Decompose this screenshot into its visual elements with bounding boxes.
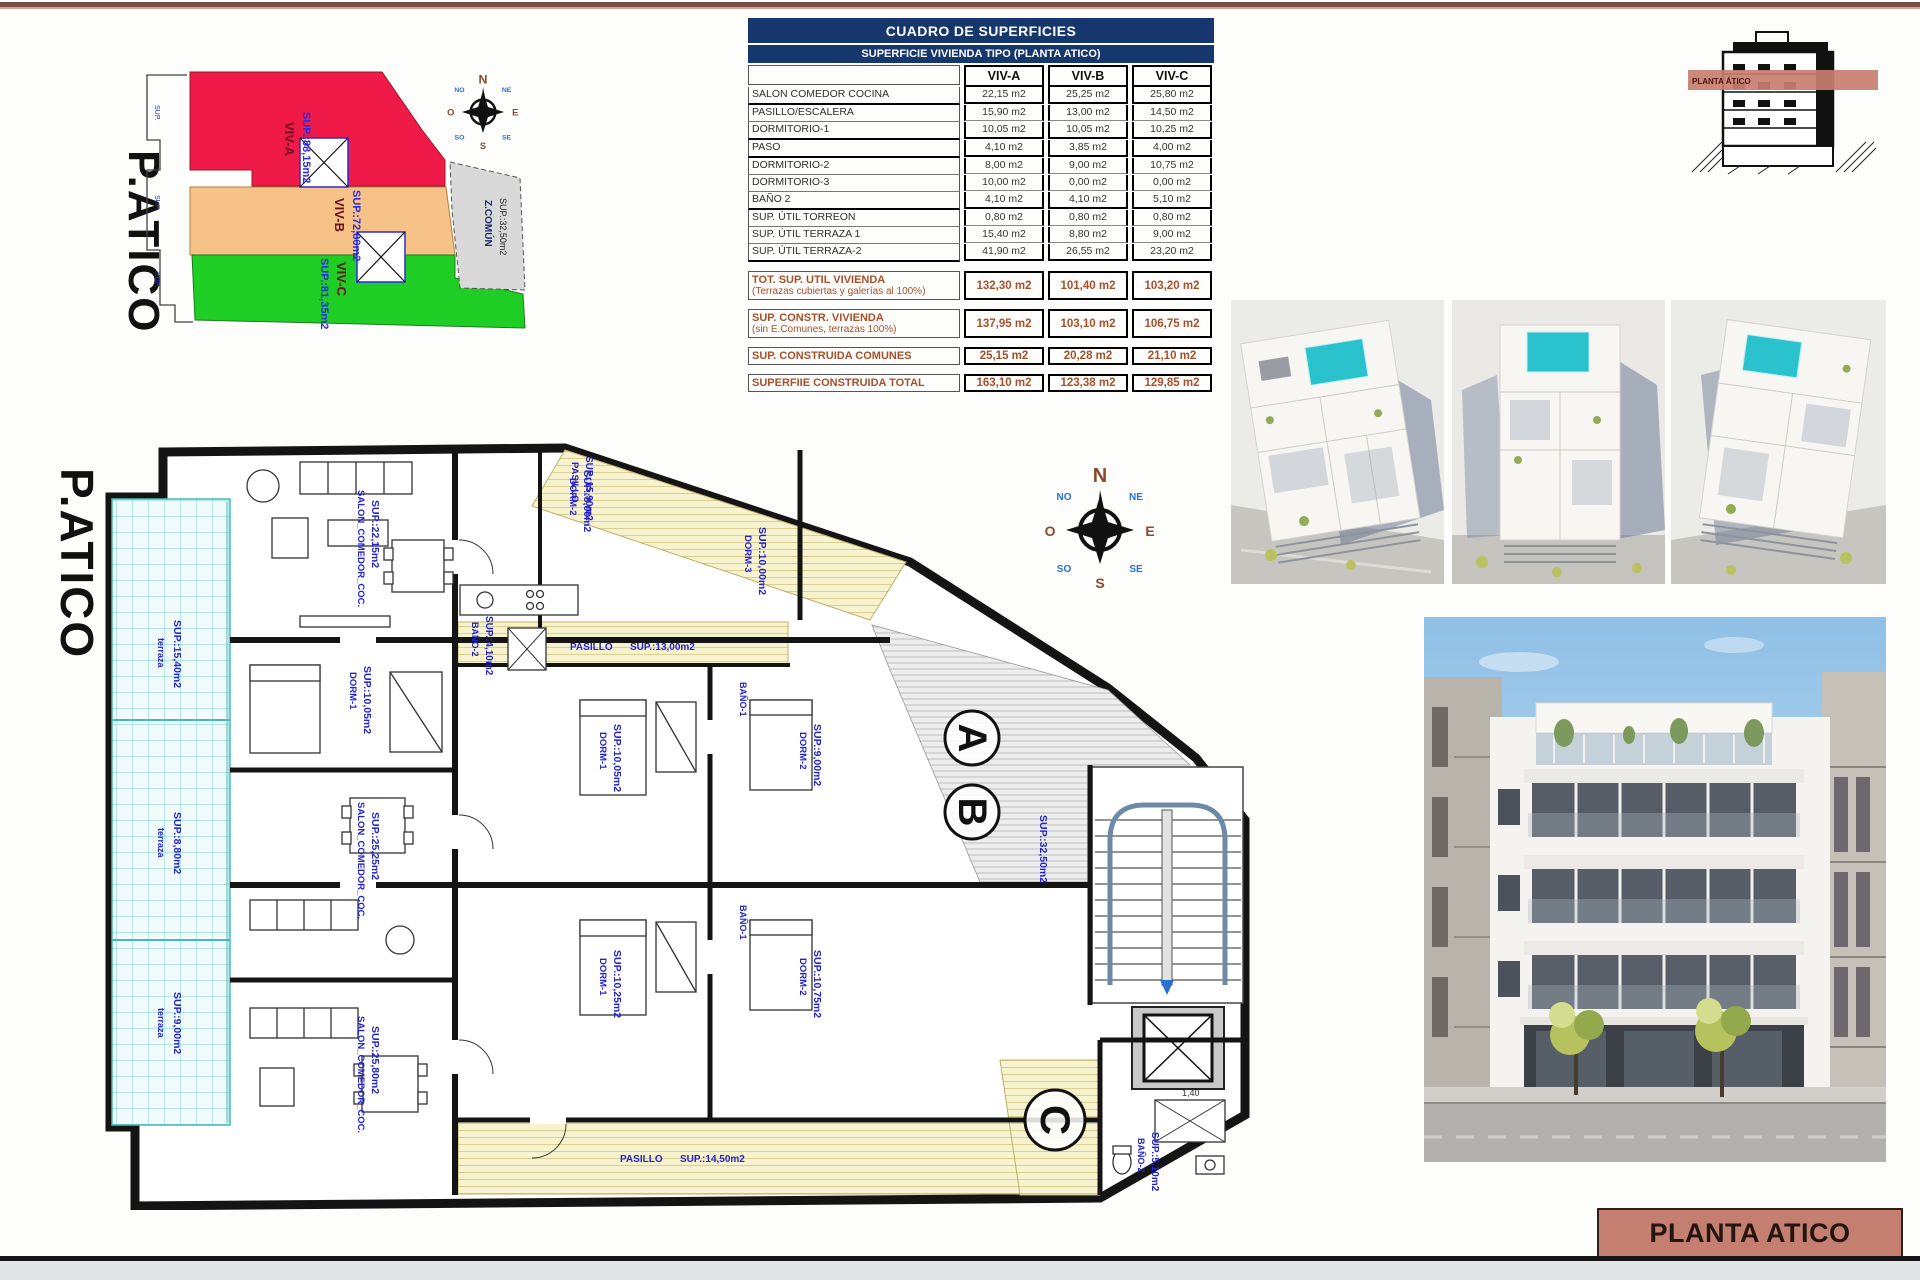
label-viv-b: VIV-B — [332, 198, 347, 232]
col-viv-c: VIV-C — [1132, 65, 1212, 87]
core-2 — [357, 232, 405, 282]
svg-text:DORM-3: DORM-3 — [742, 535, 753, 572]
table-row: PASILLO/ESCALERA15,90 m213,00 m214,50 m2 — [748, 105, 1214, 122]
svg-text:SE: SE — [502, 134, 512, 141]
table-header-row: VIV-A VIV-B VIV-C — [748, 65, 1214, 87]
unit-marker-a: A — [945, 711, 999, 765]
svg-text:BAÑO-1: BAÑO-1 — [738, 905, 748, 940]
edge-sup-2: SUP. — [153, 195, 160, 210]
label-z-comun-sup: SUP.:32,50m2 — [498, 198, 508, 255]
aerial-render-1 — [1231, 300, 1444, 584]
table-total-row: SUP. CONSTRUIDA COMUNES 25,15 m220,28 m2… — [748, 347, 1214, 365]
shower-dimension: 1,40 — [1182, 1088, 1200, 1098]
svg-text:S: S — [1095, 575, 1104, 591]
svg-text:NO: NO — [454, 87, 465, 94]
aerial-render-2 — [1452, 300, 1665, 584]
svg-text:terraza: terraza — [156, 1008, 166, 1039]
svg-text:SUP.:15,90m2: SUP.:15,90m2 — [583, 456, 594, 521]
facade-render — [1424, 617, 1886, 1162]
svg-text:SUP.:25,25m2: SUP.:25,25m2 — [369, 812, 381, 880]
table-row: DORMITORIO-28,00 m29,00 m210,75 m2 — [748, 158, 1214, 175]
svg-text:O: O — [447, 108, 454, 118]
plan-sheet: P.ATICO VIV-A SUP.:88,15m2 VIV-B — [0, 0, 1920, 1280]
svg-text:SALON_COMEDOR_COC.: SALON_COMEDOR_COC. — [355, 1016, 366, 1133]
svg-text:C: C — [1032, 1105, 1079, 1135]
svg-text:terraza: terraza — [156, 828, 166, 859]
svg-text:SUP.:9,00m2: SUP.:9,00m2 — [811, 724, 823, 786]
svg-text:E: E — [1145, 523, 1154, 539]
svg-text:B: B — [950, 798, 994, 827]
svg-text:SALON_COMEDOR_COC.: SALON_COMEDOR_COC. — [355, 802, 366, 919]
table-title: CUADRO DE SUPERFICIES — [748, 18, 1214, 43]
svg-text:N: N — [479, 72, 488, 86]
page-bottom-strip — [0, 1261, 1920, 1280]
svg-text:SUP.:10,00m2: SUP.:10,00m2 — [756, 527, 768, 595]
unit-marker-c: C — [1025, 1090, 1085, 1150]
svg-text:E: E — [512, 108, 518, 118]
label-viv-b-sup: SUP.:72,80m2 — [350, 190, 362, 261]
north-compass-icon: N E S O NO NE SO SE — [1045, 465, 1155, 591]
svg-text:SUP.:14,50m2: SUP.:14,50m2 — [680, 1154, 745, 1165]
atico-band-label: PLANTA ÁTICO — [1692, 77, 1751, 86]
svg-text:SO: SO — [455, 134, 466, 141]
edge-sup-3: SUP. — [153, 272, 160, 287]
surface-table: CUADRO DE SUPERFICIES SUPERFICIE VIVIEND… — [748, 18, 1214, 392]
title-block: PLANTA ATICO — [1597, 1208, 1903, 1258]
svg-text:SUP.:8,80m2: SUP.:8,80m2 — [171, 812, 183, 874]
page-top-border — [0, 2, 1920, 9]
svg-text:SUP.:10,05m2: SUP.:10,05m2 — [361, 666, 373, 734]
staircase — [1092, 767, 1243, 1003]
unit-marker-b: B — [945, 785, 999, 839]
svg-text:SUP.:10,05m2: SUP.:10,05m2 — [611, 724, 623, 792]
edge-sup-1: SUP. — [153, 105, 160, 120]
table-total-row: SUP. CONSTR. VIVIENDA(sin E.Comunes, ter… — [748, 309, 1214, 338]
svg-text:PASILLO: PASILLO — [570, 642, 613, 653]
section-diagram: PLANTA ÁTICO — [1688, 26, 1878, 176]
table-row: DORMITORIO-310,00 m20,00 m20,00 m2 — [748, 175, 1214, 192]
svg-text:SE: SE — [1129, 564, 1143, 575]
svg-text:SUP.:13,00m2: SUP.:13,00m2 — [630, 642, 695, 653]
svg-text:SUP.:5,10m2: SUP.:5,10m2 — [1149, 1132, 1160, 1192]
table-row: SUP. ÚTIL TORREON0,80 m20,80 m20,80 m2 — [748, 210, 1214, 227]
svg-text:SUP.:10,75m2: SUP.:10,75m2 — [811, 950, 823, 1018]
label-viv-c-sup: SUP.:81,35m2 — [318, 258, 330, 329]
svg-text:O: O — [1045, 523, 1056, 539]
svg-text:DORM-1: DORM-1 — [347, 672, 358, 710]
svg-text:NE: NE — [502, 87, 512, 94]
table-row: DORMITORIO-110,05 m210,05 m210,25 m2 — [748, 122, 1214, 140]
svg-text:SUP.:4,10m2: SUP.:4,10m2 — [483, 616, 494, 676]
svg-text:S: S — [480, 141, 486, 151]
table-total-row: SUPERFIIE CONSTRUIDA TOTAL 163,10 m2123,… — [748, 374, 1214, 392]
table-total-row: TOT. SUP. UTIL VIVIENDA(Terrazas cubiert… — [748, 271, 1214, 300]
label-viv-c: VIV-C — [334, 262, 349, 297]
svg-text:BAÑO-2: BAÑO-2 — [470, 622, 480, 657]
aerial-render-3 — [1671, 300, 1886, 584]
compass-icon: N E S O NO NE SO SE — [447, 72, 518, 151]
svg-text:N: N — [1093, 465, 1107, 487]
elevator — [1132, 1007, 1224, 1089]
table-row: SUP. ÚTIL TERRAZA-241,90 m226,55 m223,20… — [748, 244, 1214, 262]
sheet-title: PLANTA ATICO — [1650, 1218, 1851, 1249]
svg-text:SALON_COMEDOR_COC.: SALON_COMEDOR_COC. — [355, 490, 366, 607]
svg-text:SUP.:25,80m2: SUP.:25,80m2 — [369, 1026, 381, 1094]
svg-text:SUP.:32,50m2: SUP.:32,50m2 — [1037, 815, 1049, 883]
table-subtitle: SUPERFICIE VIVIENDA TIPO (PLANTA ATICO) — [748, 45, 1214, 63]
label-viv-a: VIV-A — [282, 122, 297, 157]
svg-text:DORM-2: DORM-2 — [797, 958, 808, 995]
svg-text:BAÑO-2: BAÑO-2 — [1136, 1138, 1146, 1173]
table-row: PASO4,10 m23,85 m24,00 m2 — [748, 140, 1214, 158]
svg-text:NO: NO — [1057, 492, 1072, 503]
table-row: BAÑO 24,10 m24,10 m25,10 m2 — [748, 192, 1214, 210]
svg-text:DORM-1: DORM-1 — [597, 732, 608, 770]
svg-text:DORM-2: DORM-2 — [797, 732, 808, 769]
svg-text:SO: SO — [1057, 564, 1072, 575]
col-viv-b: VIV-B — [1048, 65, 1128, 87]
svg-text:SUP.:15,40m2: SUP.:15,40m2 — [171, 620, 183, 688]
zone-viv-b — [190, 187, 455, 255]
svg-text:SUP.:10,25m2: SUP.:10,25m2 — [611, 950, 623, 1018]
floor-plan: A B C N E S O NO NE SO SE — [100, 420, 1250, 1210]
key-plan: P.ATICO VIV-A SUP.:88,15m2 VIV-B — [115, 50, 560, 355]
svg-text:terraza: terraza — [156, 638, 166, 669]
svg-text:SUP.:22,15m2: SUP.:22,15m2 — [369, 500, 381, 568]
table-row: SALON COMEDOR COCINA22,15 m225,25 m225,8… — [748, 87, 1214, 105]
svg-text:PASILLO: PASILLO — [620, 1154, 663, 1165]
floor-plan-title: P.ATICO — [50, 468, 104, 659]
terrace-tiled — [112, 499, 230, 1125]
label-z-comun: Z.COMÚN — [482, 200, 495, 247]
band-pasillo-c — [458, 1122, 1098, 1194]
svg-text:NE: NE — [1129, 492, 1143, 503]
svg-text:A: A — [950, 724, 994, 753]
col-viv-a: VIV-A — [964, 65, 1044, 87]
label-viv-a-sup: SUP.:88,15m2 — [300, 112, 312, 183]
svg-text:PASILLO: PASILLO — [569, 462, 580, 502]
svg-text:SUP.:9,00m2: SUP.:9,00m2 — [171, 992, 183, 1054]
svg-text:DORM-1: DORM-1 — [597, 958, 608, 996]
table-row: SUP. ÚTIL TERRAZA 115,40 m28,80 m29,00 m… — [748, 227, 1214, 244]
svg-text:BAÑO-1: BAÑO-1 — [738, 682, 748, 717]
key-plan-title: P.ATICO — [119, 150, 168, 334]
